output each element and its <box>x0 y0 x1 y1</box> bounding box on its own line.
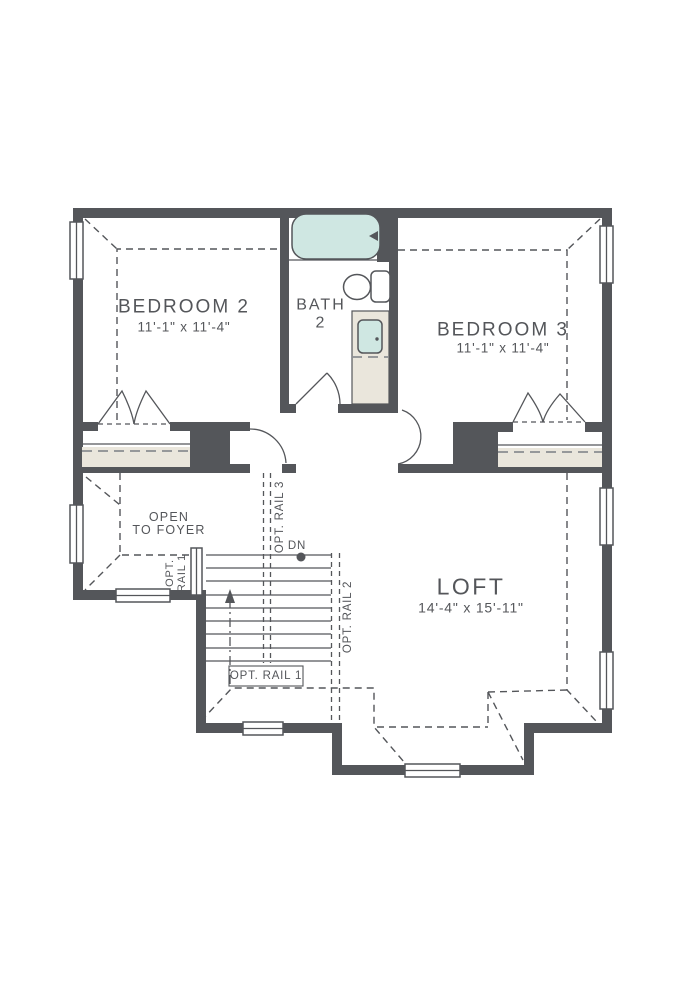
closet2-door-left <box>98 391 134 424</box>
bath-door-arc <box>327 373 340 404</box>
vanity-sink <box>358 320 382 353</box>
loft-ceiling-break-mid <box>488 690 567 692</box>
stair-treads <box>206 555 331 661</box>
exterior-walls <box>73 208 612 775</box>
window-loft-bump-bottom <box>405 764 460 777</box>
down-label: DN <box>288 540 306 552</box>
bathtub <box>292 214 380 259</box>
bedroom2-dimensions: 11'-1" x 11'-4" <box>137 321 230 336</box>
closet3-door-left <box>513 393 543 422</box>
wall-closet3-stub <box>585 422 602 432</box>
bedroom3-label: BEDROOM 3 <box>437 321 569 342</box>
wall-stair-left <box>196 590 206 733</box>
closet2-door-right <box>134 391 170 424</box>
bath2-label: BATH <box>296 296 345 313</box>
wall-closet2-top <box>170 422 250 431</box>
wall-closet3-top <box>498 422 513 432</box>
sink-drain <box>375 337 378 340</box>
wall-bottom-right <box>524 723 612 733</box>
bedroom2-label: BEDROOM 2 <box>118 298 250 319</box>
foyer-diagonal-bottom <box>85 555 120 590</box>
opt-rail-2-label: OPT. RAIL 2 <box>342 581 354 653</box>
closet3-door-right <box>543 394 585 422</box>
wall-bath-left <box>280 208 289 413</box>
closet3-shelf <box>498 448 602 467</box>
staircase <box>191 473 340 720</box>
opt-rail-1-label: OPT. RAIL 1 <box>230 670 302 682</box>
loft-label: LOFT <box>437 575 506 600</box>
window-bedroom2-left <box>70 222 83 279</box>
opt-rail-3-label: OPT. RAIL 3 <box>274 481 286 553</box>
bedroom3-door-arc <box>398 410 421 464</box>
bedroom3-dimensions: 11'-1" x 11'-4" <box>456 342 549 357</box>
down-newel-dot <box>297 553 306 562</box>
opt-rail-2 <box>332 553 340 720</box>
floor-plan: BEDROOM 2 11'-1" x 11'-4" BATH 2 BEDROOM… <box>0 0 684 981</box>
opt-rail-1-segment <box>191 548 202 595</box>
loft-bump-diagonal <box>488 692 523 760</box>
floor-plan-drawing <box>0 0 684 981</box>
bath2-number: 2 <box>316 314 327 331</box>
window-stairs-bottom <box>243 722 283 735</box>
wall-bath-bottom-stub <box>280 404 296 413</box>
window-foyer-bottom <box>116 589 170 602</box>
foyer-diagonal-top <box>86 477 120 505</box>
window-loft-right-upper <box>600 488 613 545</box>
toilet-bowl <box>344 275 371 300</box>
open-to-foyer-label: OPEN TO FOYER <box>132 511 205 537</box>
bedroom2-door-arc <box>250 429 286 463</box>
window-foyer-left <box>70 505 83 563</box>
bath-door-leaf <box>296 373 327 404</box>
loft-ceiling-break-right <box>567 473 596 721</box>
bedroom3-corner-diagonal <box>567 219 600 250</box>
loft-dimensions: 14'-4" x 15'-11" <box>418 600 524 615</box>
window-bedroom3-right <box>600 226 613 283</box>
wall-hall-stub <box>282 464 296 473</box>
wall-closet3-block <box>453 422 498 473</box>
window-loft-right-lower <box>600 652 613 709</box>
wall-closet2-stub <box>83 422 98 431</box>
bedroom2-corner-diagonal <box>85 219 117 249</box>
closet2-shelf <box>82 447 190 467</box>
opt-rail-1-side-label: OPT. RAIL 1 <box>165 554 189 592</box>
arrow-head-icon <box>225 589 235 603</box>
toilet-tank <box>371 271 390 302</box>
